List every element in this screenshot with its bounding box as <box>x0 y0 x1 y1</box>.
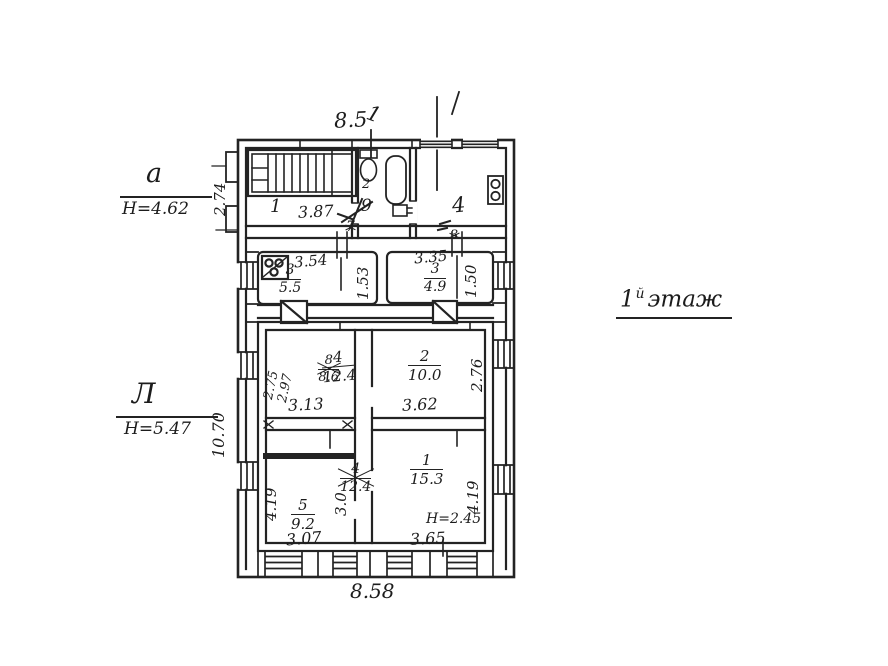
lr-area: 15.3 <box>410 470 443 487</box>
ul-fraction: 4 12.4 <box>321 348 357 386</box>
floor-plan-drawing <box>0 0 888 666</box>
floor-word: этаж <box>648 287 723 313</box>
strip-right-depth: 1.50 <box>464 265 479 298</box>
room1-number: 1 <box>270 198 281 216</box>
lr-depth: 4.19 <box>466 481 481 514</box>
lr-room: 1 <box>410 452 443 470</box>
ul-width: 3.13 <box>288 396 324 414</box>
litera-main-underline <box>116 416 218 418</box>
top-block-walls <box>246 148 506 238</box>
strip-right-fraction: 3 4.9 <box>424 262 446 295</box>
litera-top-underline <box>120 196 212 198</box>
ll-fraction: 5 9.2 <box>291 497 315 532</box>
lr-height-note: H=2.45 <box>426 512 481 526</box>
lr-fraction: 1 15.3 <box>410 452 443 487</box>
window-symbols-right <box>493 262 514 494</box>
floor-sup: й <box>636 286 645 302</box>
strip-left-depth: 1.53 <box>356 267 371 300</box>
strip-right-area: 4.9 <box>424 279 446 295</box>
strip-right-room: 3 <box>424 262 446 279</box>
ll-depth: 4.19 <box>264 488 279 521</box>
strip-left-fraction: 3 5.5 <box>279 263 301 296</box>
ul-area: 12.4 <box>322 366 357 386</box>
flue-wall <box>258 301 493 323</box>
dim-left-main: 10.70 <box>211 412 227 458</box>
strip-left-area: 5.5 <box>279 280 301 296</box>
ur-depth: 2.76 <box>470 359 485 392</box>
ur-width: 3.62 <box>402 396 438 414</box>
bath-scribble-old: 7 <box>346 220 355 234</box>
dim-top: 8.5 <box>333 109 367 132</box>
window-symbols-left <box>237 262 259 490</box>
litera-top-letter: а <box>146 160 162 187</box>
ur-area: 10.0 <box>408 366 441 383</box>
ll-width: 3.07 <box>285 529 322 548</box>
stove-icon <box>488 176 503 204</box>
floor-plan-page: 8.5 1 а H=4.62 2.74 Л H=5.47 10.70 1йэта… <box>0 0 888 666</box>
ll-inner-depth: 3.0 <box>334 492 349 516</box>
kitchen-number-old: 3 <box>450 229 458 242</box>
strip-left-room: 3 <box>279 263 301 280</box>
litera-top-height: H=4.62 <box>122 201 189 218</box>
ur-room: 2 <box>408 348 441 366</box>
lr-width: 3.65 <box>410 530 446 548</box>
bath-number: 2 <box>362 178 370 191</box>
room1-width: 3.87 <box>298 203 334 221</box>
dim-left-top-block: 2.74 <box>213 183 228 216</box>
staircase-icon <box>248 150 356 196</box>
floor-label: 1йэтаж <box>616 288 732 319</box>
kitchen-number-new: 4 <box>451 194 466 216</box>
litera-main-height: H=5.47 <box>124 421 191 438</box>
dim-bottom: 8.58 <box>350 581 395 601</box>
bathtub-icon <box>386 156 406 204</box>
litera-main-letter: Л <box>132 380 155 408</box>
ur-fraction: 2 10.0 <box>408 348 441 383</box>
window-symbols-bottom <box>258 551 493 577</box>
ll-room-old: 4 <box>340 462 371 479</box>
ll-room: 5 <box>291 497 315 515</box>
floor-number: 1 <box>620 287 635 313</box>
bath-scribble-new: 9 <box>361 198 372 215</box>
ll-fraction-old: 4 12.4 <box>340 462 371 495</box>
